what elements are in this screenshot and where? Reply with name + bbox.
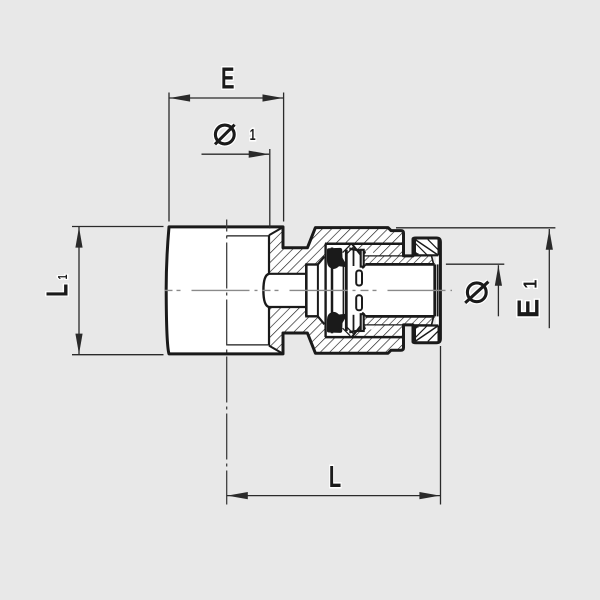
svg-text:L: L bbox=[40, 284, 75, 297]
svg-text:L: L bbox=[329, 459, 341, 494]
svg-text:E: E bbox=[511, 299, 546, 319]
svg-text:1: 1 bbox=[250, 127, 256, 144]
svg-text:1: 1 bbox=[55, 275, 70, 280]
svg-text:1: 1 bbox=[520, 280, 540, 289]
svg-text:E: E bbox=[221, 60, 235, 95]
